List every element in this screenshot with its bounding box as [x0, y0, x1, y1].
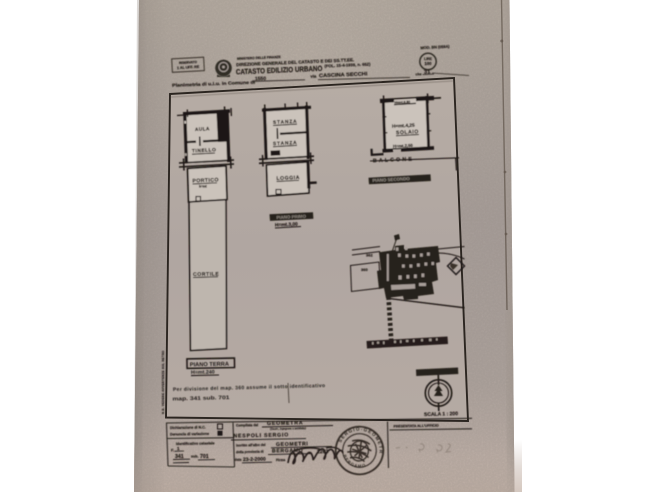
svg-text:N.B. VEDERE AVVERTENZE SUL RET: N.B. VEDERE AVVERTENZE SUL RETRO: [161, 350, 165, 414]
svg-text:H=mt.0,80: H=mt.0,80: [394, 100, 410, 105]
svg-text:iscritto all'albo dei: iscritto all'albo dei: [236, 443, 266, 448]
svg-text:data: data: [234, 458, 241, 462]
svg-text:Identificativo catastale: Identificativo catastale: [176, 441, 215, 446]
svg-text:PIANO TERRA: PIANO TERRA: [190, 362, 229, 369]
svg-text:F.: F.: [171, 448, 174, 453]
svg-text:362: 362: [366, 253, 373, 258]
svg-text:AULA: AULA: [195, 126, 210, 133]
svg-text:Dichiarazione di N.C.: Dichiarazione di N.C.: [170, 425, 206, 430]
svg-text:Compilata dal: Compilata dal: [236, 423, 258, 427]
svg-text:h=mt: h=mt: [199, 185, 208, 189]
svg-text:che: che: [415, 72, 421, 76]
svg-text:via: via: [310, 74, 317, 79]
svg-text:Denuncia di variazione: Denuncia di variazione: [170, 432, 209, 437]
svg-text:NESPOLI SERGIO: NESPOLI SERGIO: [233, 432, 289, 439]
svg-text:SCALA 1 : 200: SCALA 1 : 200: [424, 411, 458, 418]
svg-text:701: 701: [200, 454, 209, 460]
svg-text:H=mt.2,50: H=mt.2,50: [393, 143, 414, 149]
svg-text:(Geom., ingegnere o architetto: (Geom., ingegnere o architetto): [270, 426, 306, 431]
svg-text:Firma: Firma: [276, 458, 285, 462]
svg-text:360: 360: [361, 267, 368, 272]
svg-text:della provincia di: della provincia di: [236, 450, 264, 455]
svg-text:100: 100: [425, 61, 433, 66]
svg-text:sub.: sub.: [191, 455, 198, 459]
